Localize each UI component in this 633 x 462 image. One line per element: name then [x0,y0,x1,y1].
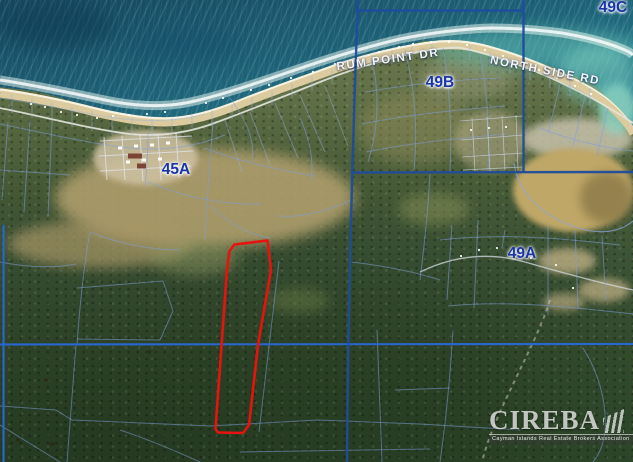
parcel-line [77,233,90,345]
parcel-line [176,133,179,178]
parcel-line [99,151,193,156]
parcel-line [548,85,560,133]
parcel-line [443,48,451,172]
parcel-line [516,115,518,170]
parcel-line [278,200,352,216]
block-boundary-line [351,172,633,173]
parcel-line [575,230,578,308]
parcel-line [395,388,450,390]
parcel-line [377,330,382,462]
parcel-line [440,330,453,462]
parcel-line [210,205,270,238]
parcel-line [300,118,312,180]
coastline [0,42,633,130]
parcel-line [573,96,585,146]
parcel-line [205,122,213,240]
parcel-line [100,136,192,141]
parcel-line [447,225,452,300]
parcel-line [0,262,76,267]
parcel-line [2,122,8,200]
parcel-line [48,122,52,216]
parcel-line [365,78,500,92]
parcel-line [90,232,180,250]
parcel-line [420,256,633,290]
parcel-line [540,128,633,151]
parcel-line [352,262,440,280]
parcel-line [440,237,620,245]
parcel-line [420,174,430,280]
parcel-line [448,304,633,314]
section-boundary-line [0,344,633,345]
parcel-line [502,230,505,248]
parcel-line [158,134,161,180]
parcel-line [474,220,478,308]
cadastral-overlay [0,0,633,462]
parcel-line [502,116,505,170]
parcel-line [368,60,377,162]
parcel-line [77,281,173,340]
parcel-line [463,167,523,170]
parcel-line [148,182,262,204]
parcel-line [0,170,70,175]
parcel-line [366,134,508,152]
parcel-line [583,348,605,462]
parcel-line [405,50,416,170]
parcel-line [362,106,505,124]
parcel-line [120,430,200,462]
parcel-line [482,300,550,462]
parcel-line [472,118,475,171]
parcel-line [462,153,523,157]
parcel-line [460,116,523,121]
parcel-line [205,148,315,176]
parcel-line [597,108,608,156]
parcel-line [67,345,76,462]
satellite-map[interactable]: 45A 49A 49B 49C RUM POINT DR NORTH SIDE … [0,0,633,462]
parcel-line [104,137,107,180]
parcel-line [77,339,160,340]
parcel-line [240,449,430,452]
parcel-line [24,120,30,212]
parcel-line [480,55,489,172]
parcel-line [122,136,125,180]
parcel-line [602,236,606,300]
